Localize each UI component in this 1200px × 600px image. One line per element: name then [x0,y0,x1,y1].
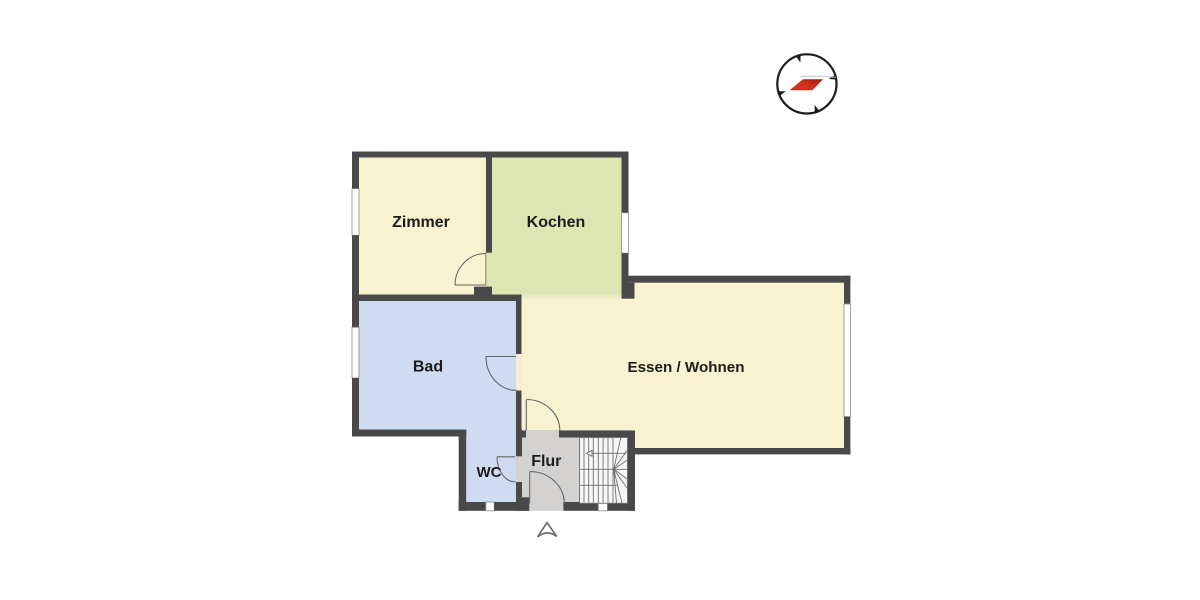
svg-text:Zimmer: Zimmer [392,214,450,231]
svg-text:Bad: Bad [413,359,443,376]
svg-text:Essen / Wohnen: Essen / Wohnen [627,359,744,376]
svg-text:Kochen: Kochen [527,214,586,231]
svg-text:Flur: Flur [531,453,561,470]
svg-text:WC: WC [477,464,502,481]
